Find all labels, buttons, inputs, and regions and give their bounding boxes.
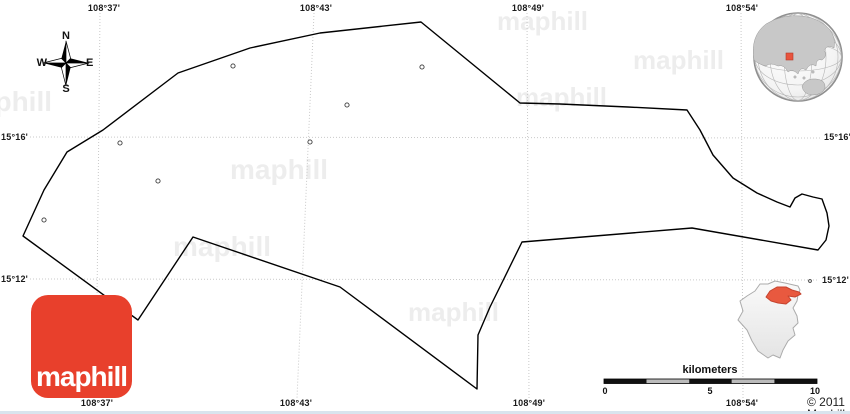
city-marker [231,64,235,68]
continent-australia [802,79,825,95]
latitude-label-right: 15°16' [824,133,850,142]
scale-tick-0: 0 [602,387,607,396]
city-marker [345,103,349,107]
scale-tick-5: 5 [707,387,712,396]
region-boundary [23,22,829,389]
maphill-logo: maphill [31,295,132,398]
city-marker [420,65,424,69]
longitude-label-top: 108°54' [726,4,758,13]
longitude-label-bottom: 108°49' [513,399,545,408]
compass-west-label: W [37,58,47,69]
longitude-label-top: 108°49' [512,4,544,13]
compass-rose-icon [43,41,89,86]
scale-bar [604,379,817,384]
latitude-label-left: 15°12' [1,275,28,284]
map-canvas: maphill maphill maphill maphill maphill … [0,0,850,414]
gridline-meridian [527,13,529,398]
city-markers [42,64,811,283]
gridline-parallel [30,279,818,280]
city-marker [308,140,312,144]
longitude-label-top: 108°37' [88,4,120,13]
scale-bar-label: kilometers [682,365,737,376]
city-marker [156,179,160,183]
globe-locator-icon [753,13,842,101]
longitude-label-top: 108°43' [300,4,332,13]
city-marker [809,280,812,283]
graticule [30,13,820,398]
gridline-parallel [30,137,820,138]
compass-north-label: N [62,31,70,42]
gridline-meridian [297,13,314,398]
longitude-label-bottom: 108°37' [81,399,113,408]
longitude-label-bottom: 108°43' [280,399,312,408]
compass-south-label: S [62,84,69,95]
city-marker [118,141,122,145]
inset-map [738,281,801,358]
maphill-logo-text: maphill [31,363,132,391]
latitude-label-right: 15°12' [822,276,849,285]
latitude-label-left: 15°16' [1,133,28,142]
globe-location-marker [786,53,793,60]
compass-east-label: E [86,58,93,69]
city-marker [42,218,46,222]
gridline-meridian [741,13,743,398]
longitude-label-bottom: 108°54' [726,399,758,408]
